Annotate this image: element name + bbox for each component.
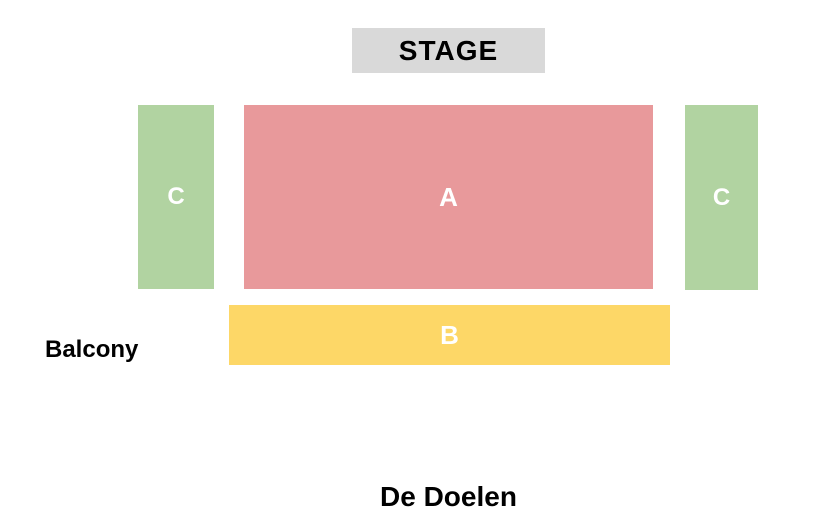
section-c-right[interactable]: C [685,105,758,290]
venue-name-label: De Doelen [380,481,517,513]
stage-label: STAGE [352,28,545,73]
section-a[interactable]: A [244,105,653,289]
balcony-label: Balcony [45,336,138,364]
section-c-left[interactable]: C [138,105,214,289]
section-b[interactable]: B [229,305,670,365]
seating-chart: STAGE C A C B Balcony De Doelen [0,0,822,529]
